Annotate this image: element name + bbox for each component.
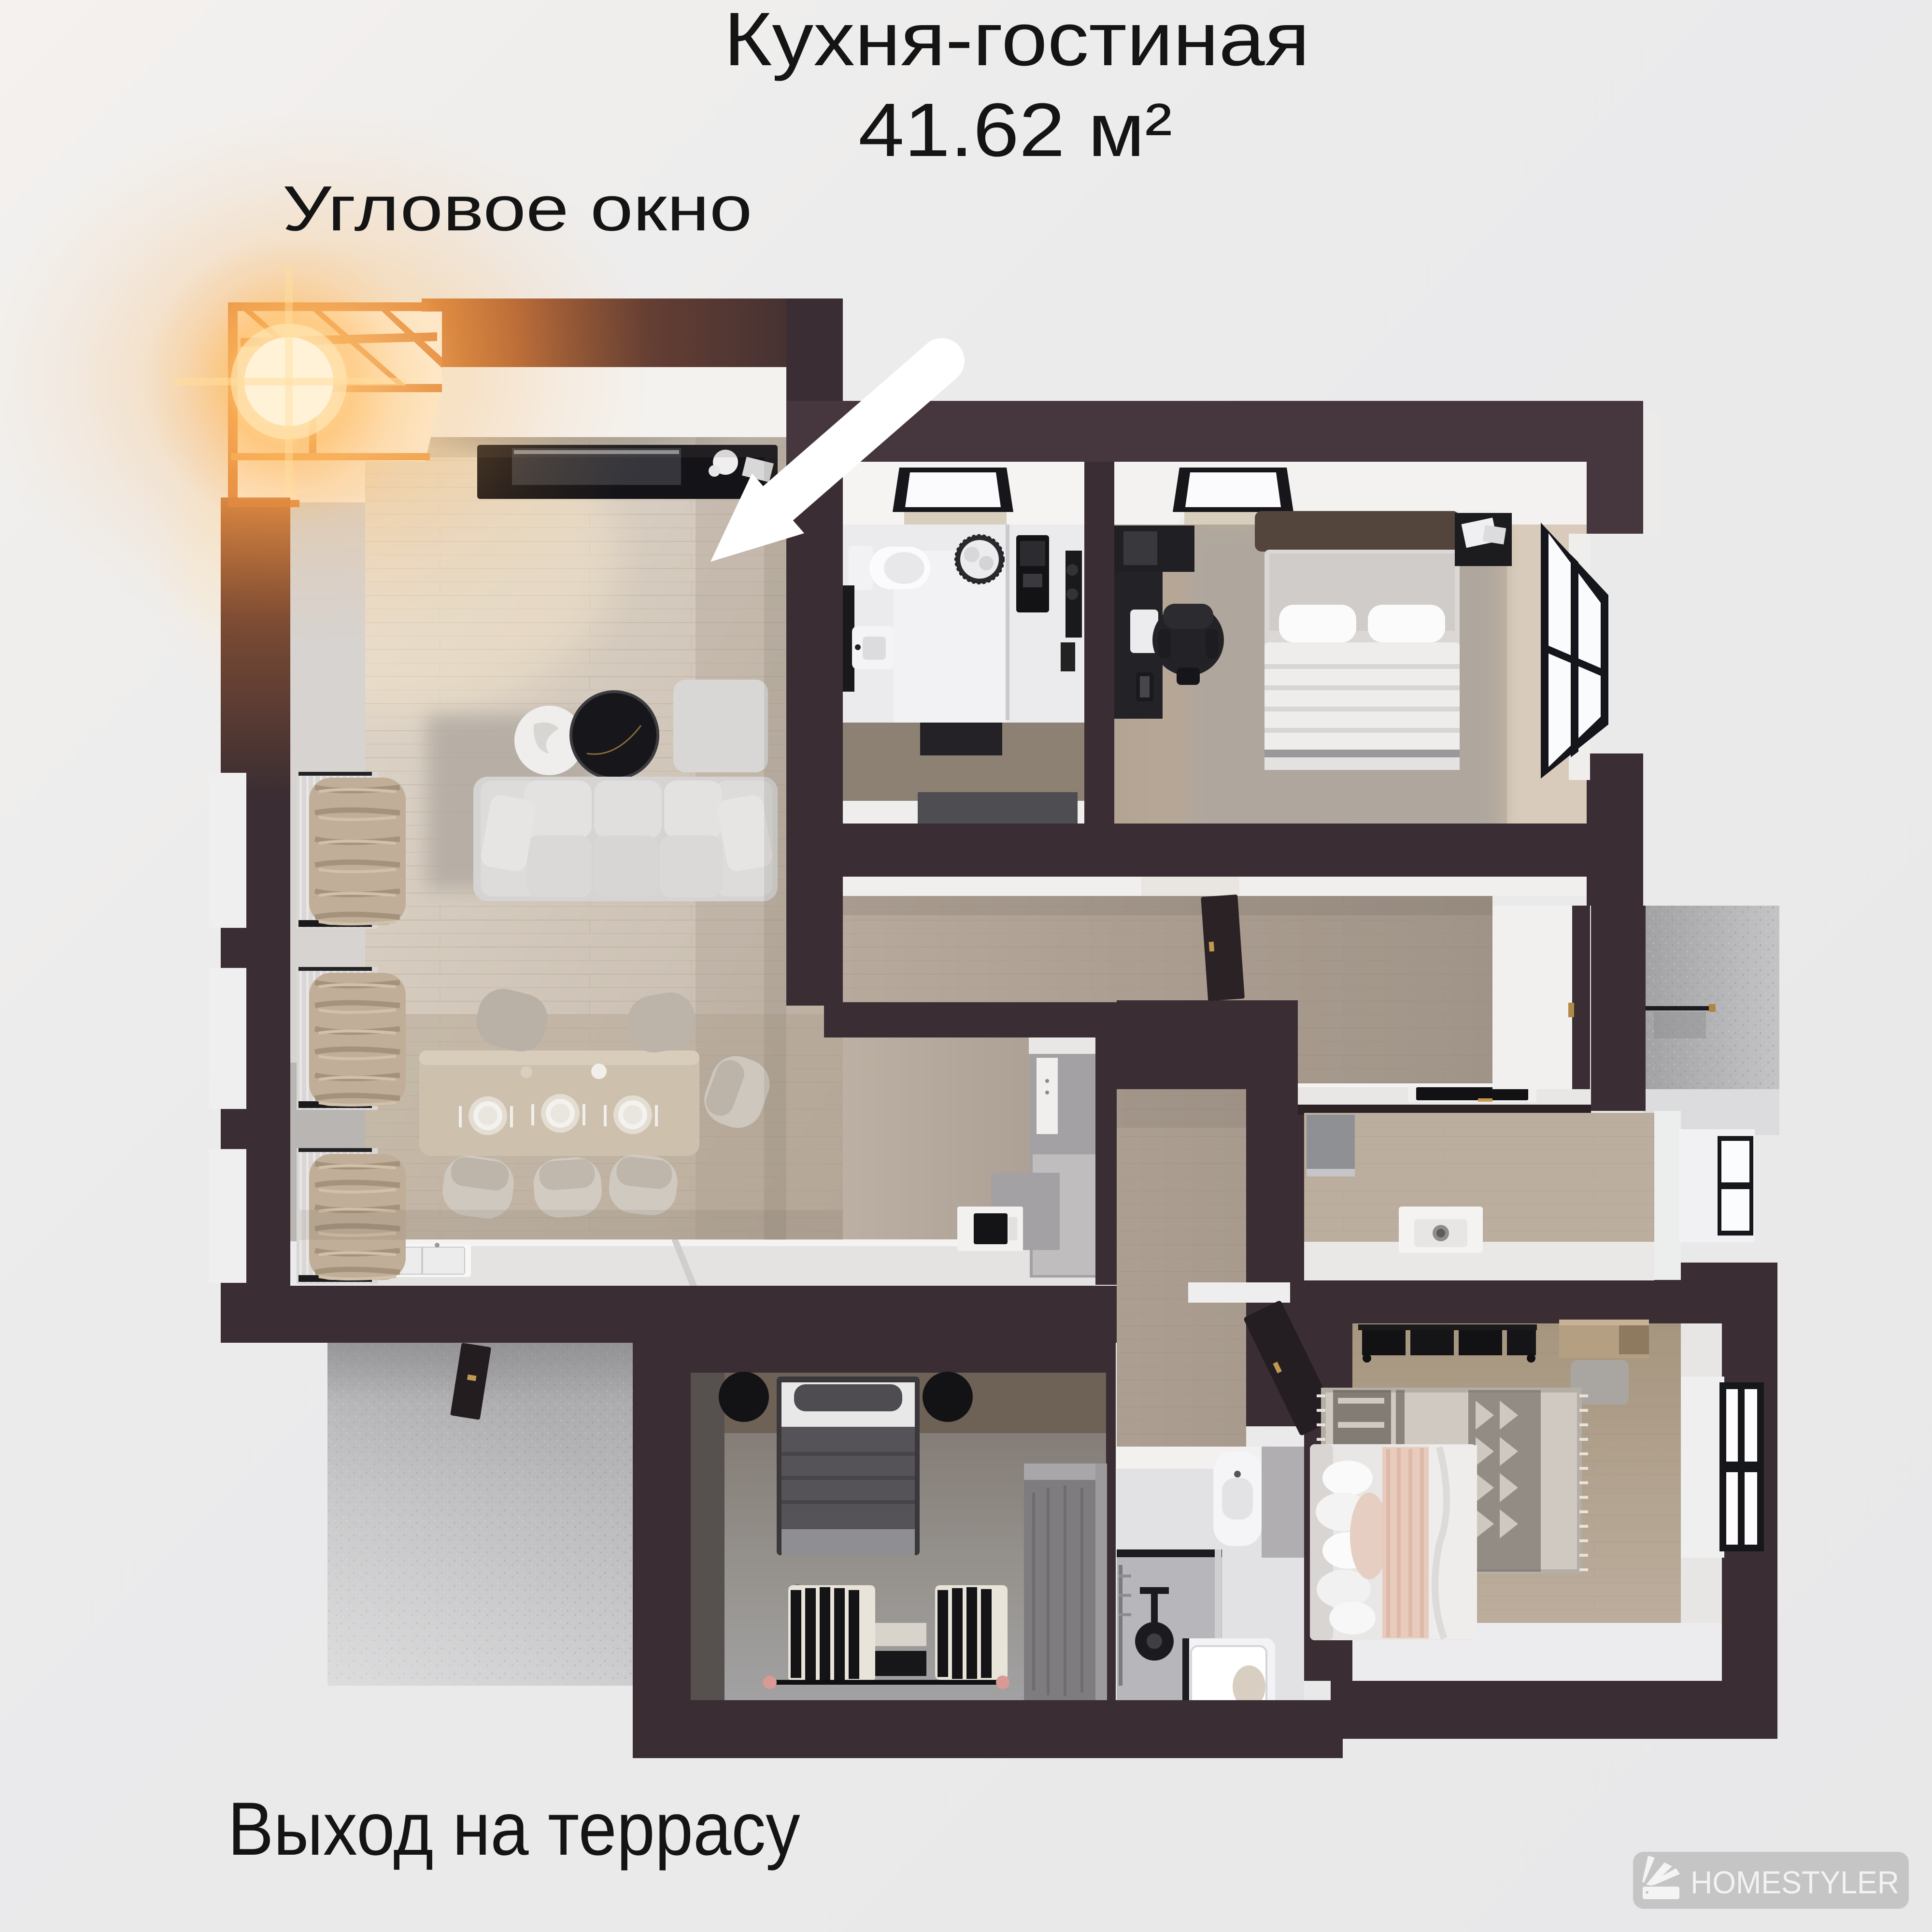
svg-text:41.62 м²: 41.62 м² xyxy=(858,88,1172,172)
svg-text:Выход на террасу: Выход на террасу xyxy=(228,1787,800,1871)
svg-text:HOMESTYLER: HOMESTYLER xyxy=(1690,1864,1899,1900)
svg-text:Угловое окно: Угловое окно xyxy=(283,173,753,244)
svg-text:Кухня-гостиная: Кухня-гостиная xyxy=(724,0,1310,82)
